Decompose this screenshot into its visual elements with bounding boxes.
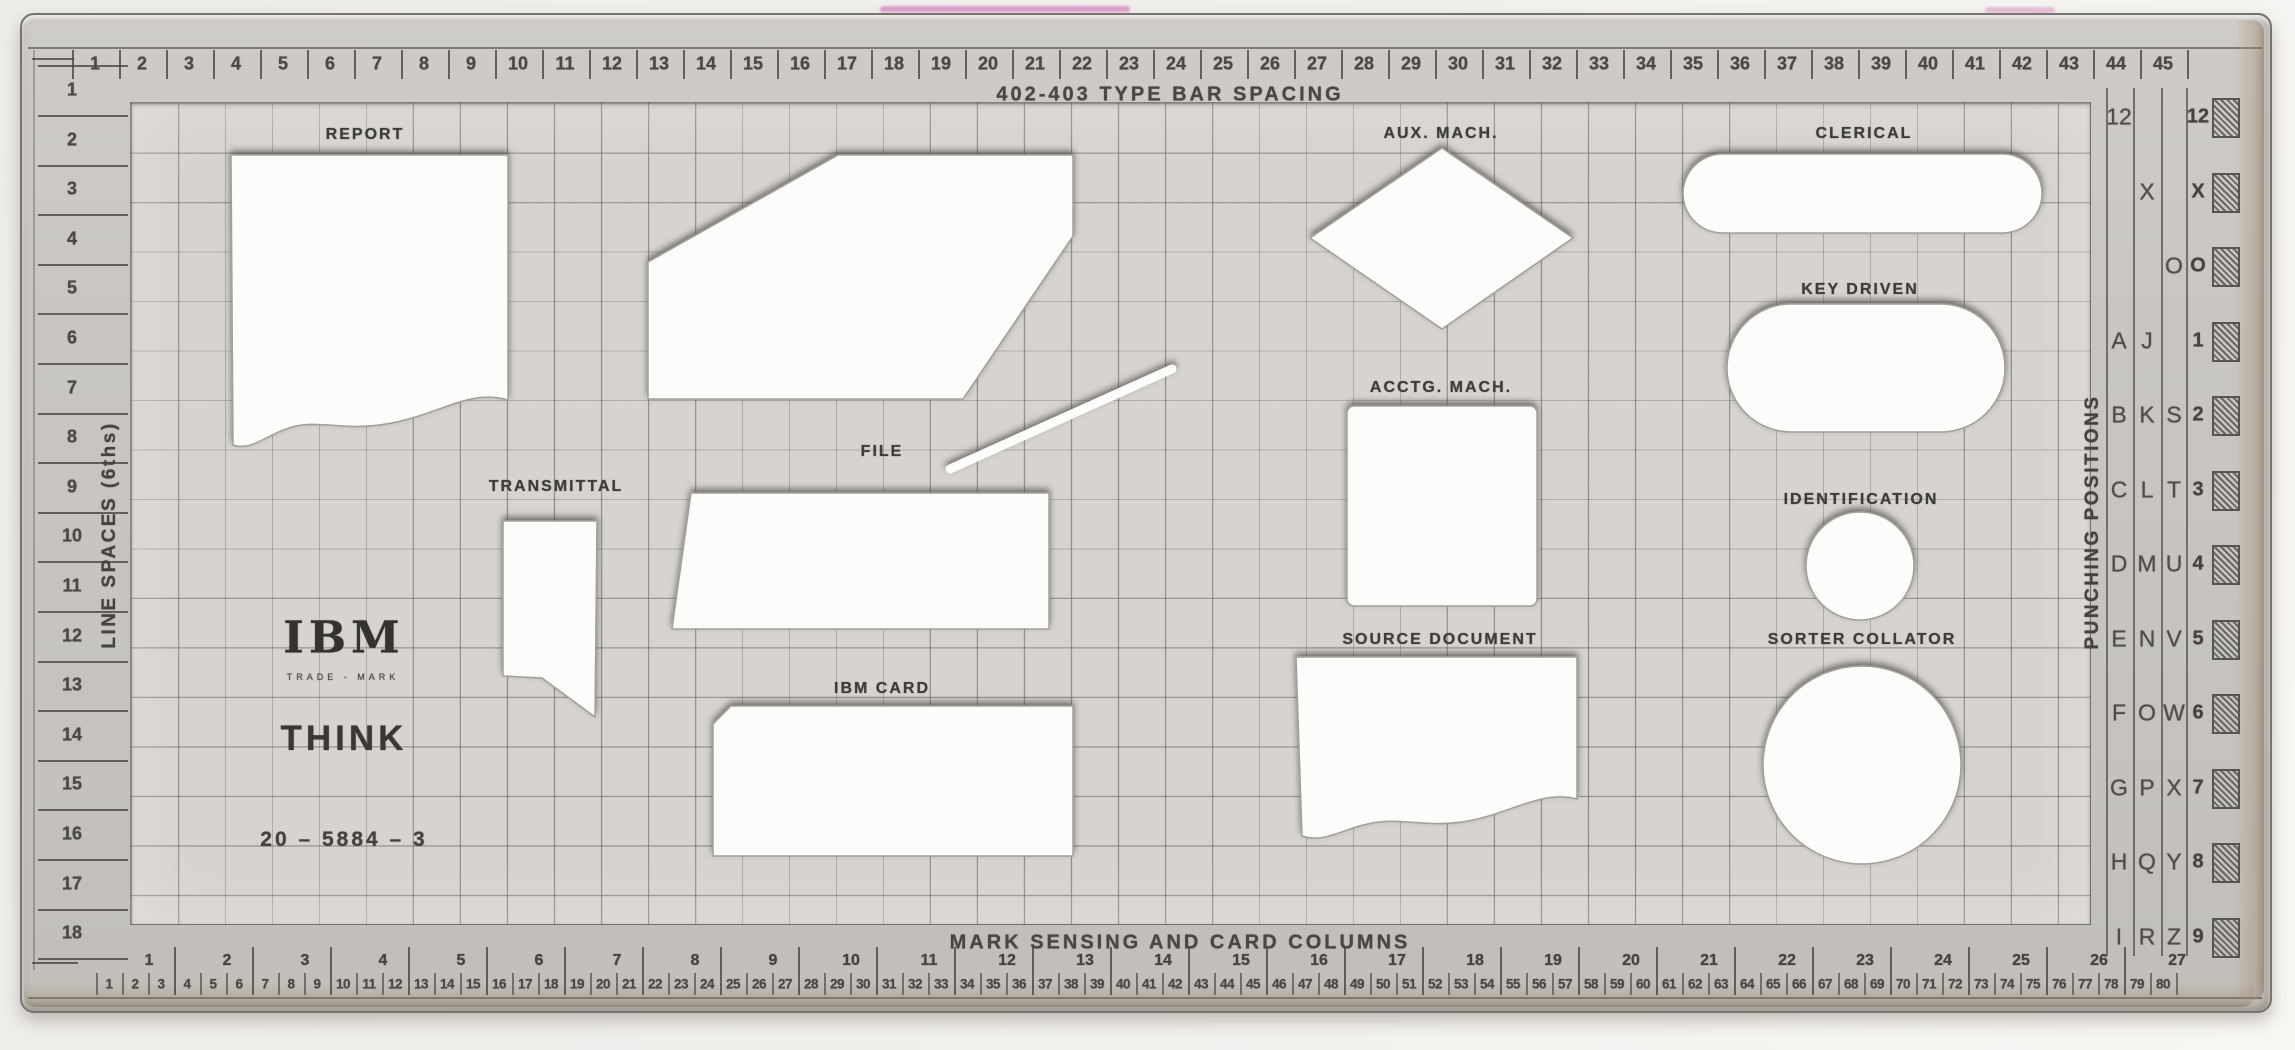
- left-ruler-tick: [38, 710, 128, 712]
- card-column-tick: [1188, 947, 1190, 995]
- left-ruler-tick: [38, 760, 128, 762]
- top-ruler-number: 36: [1730, 54, 1750, 75]
- card-column-tick: [200, 973, 202, 995]
- punching-position-char: C: [2111, 476, 2128, 503]
- card-column-tick: [2046, 947, 2048, 995]
- left-ruler-tick: [38, 661, 128, 663]
- top-ruler-tick: [1858, 50, 1860, 79]
- left-ruler-tick: [38, 611, 128, 613]
- top-ruler-tick: [1952, 50, 1954, 79]
- top-ruler-tick: [1905, 50, 1907, 79]
- card-column-number: 24: [700, 977, 714, 992]
- top-ruler-tick: [1247, 50, 1249, 79]
- card-column-number: 19: [570, 977, 584, 992]
- top-ruler-tick: [401, 50, 403, 79]
- card-column-tick: [1994, 973, 1996, 995]
- card-column-tick: [1656, 947, 1658, 995]
- punching-positions-label: PUNCHING POSITIONS: [2082, 394, 2104, 649]
- card-column-tick: [226, 973, 228, 995]
- top-ruler-tick: [1670, 50, 1672, 79]
- card-column-number: 11: [362, 977, 375, 992]
- top-ruler-number: 11: [555, 54, 574, 75]
- punching-position-char: 12: [2187, 106, 2209, 129]
- top-ruler-tick: [918, 50, 920, 79]
- card-column-tick: [1318, 973, 1320, 995]
- top-ruler-number: 8: [419, 54, 429, 75]
- left-ruler-number: 15: [62, 774, 82, 795]
- card-column-tick: [928, 973, 930, 995]
- card-column-tick: [590, 973, 592, 995]
- card-column-number: 56: [1532, 977, 1546, 992]
- punching-position-hatch-box: [2212, 769, 2240, 809]
- card-column-number: 45: [1246, 977, 1260, 992]
- top-ruler-number: 29: [1401, 54, 1421, 75]
- card-column-tick: [1552, 973, 1554, 995]
- top-ruler-tick: [965, 50, 967, 79]
- left-ruler-tick: [38, 313, 128, 315]
- top-ruler-tick: [730, 50, 732, 79]
- card-column-number: 59: [1610, 977, 1624, 992]
- punching-position-hatch-box: [2212, 322, 2240, 362]
- card-column-number: 55: [1506, 977, 1520, 992]
- card-column-number: 69: [1870, 977, 1884, 992]
- mark-sensing-number: 23: [1856, 952, 1874, 970]
- left-ruler-number: 14: [62, 724, 82, 745]
- card-column-number: 7: [261, 977, 268, 992]
- card-column-tick: [850, 973, 852, 995]
- card-column-tick: [2124, 947, 2126, 995]
- part-number: 20 – 5884 – 3: [260, 828, 427, 852]
- card-column-tick: [1812, 947, 1814, 995]
- punching-position-hatch-box: [2212, 545, 2240, 585]
- card-column-number: 54: [1480, 977, 1494, 992]
- punching-position-char: T: [2167, 476, 2181, 503]
- top-ruler-number: 1: [90, 54, 100, 75]
- top-ruler-tick: [1200, 50, 1202, 79]
- card-column-tick: [1162, 973, 1164, 995]
- card-column-number: 75: [2026, 977, 2040, 992]
- card-column-number: 37: [1038, 977, 1052, 992]
- card-column-tick: [356, 973, 358, 995]
- card-column-number: 9: [313, 977, 320, 992]
- mark-sensing-title: MARK SENSING AND CARD COLUMNS: [950, 932, 1411, 955]
- card-column-number: 10: [336, 977, 350, 992]
- card-column-tick: [798, 947, 800, 995]
- punching-position-char: X: [2139, 178, 2154, 205]
- mark-sensing-number: 8: [691, 952, 700, 970]
- card-column-number: 15: [466, 977, 480, 992]
- left-ruler-number: 3: [67, 179, 77, 200]
- card-column-tick: [1084, 973, 1086, 995]
- type-bar-spacing-title: 402-403 TYPE BAR SPACING: [996, 84, 1343, 107]
- top-ruler-number: 38: [1824, 54, 1844, 75]
- card-column-tick: [1474, 973, 1476, 995]
- card-column-tick: [1708, 973, 1710, 995]
- top-ruler-number: 34: [1636, 54, 1656, 75]
- top-ruler-tick: [2187, 50, 2189, 79]
- card-column-tick: [772, 973, 774, 995]
- card-column-number: 73: [1974, 977, 1988, 992]
- punching-position-char: W: [2163, 700, 2185, 727]
- left-ruler-number: 11: [62, 576, 81, 597]
- top-ruler-tick: [1153, 50, 1155, 79]
- card-column-number: 4: [183, 977, 190, 992]
- card-column-number: 49: [1350, 977, 1364, 992]
- top-ruler-tick: [1341, 50, 1343, 79]
- card-column-number: 25: [726, 977, 740, 992]
- left-ruler-number: 4: [67, 228, 77, 249]
- card-column-number: 61: [1662, 977, 1676, 992]
- card-column-tick: [2020, 973, 2022, 995]
- punching-position-char: 2: [2192, 404, 2203, 427]
- card-column-tick: [642, 947, 644, 995]
- card-column-number: 39: [1090, 977, 1104, 992]
- top-ruler-tick: [1529, 50, 1531, 79]
- card-column-number: 30: [856, 977, 870, 992]
- punching-position-char: X: [2191, 180, 2204, 203]
- punching-position-hatch-box: [2212, 620, 2240, 660]
- card-column-tick: [1942, 973, 1944, 995]
- top-ruler-tick: [777, 50, 779, 79]
- card-column-number: 52: [1428, 977, 1442, 992]
- card-column-number: 12: [388, 977, 402, 992]
- mark-sensing-number: 20: [1622, 952, 1640, 970]
- punching-position-char: M: [2137, 551, 2156, 578]
- punching-position-char: 9: [2192, 925, 2203, 948]
- ibm-logo: IBM: [283, 613, 404, 664]
- top-ruler-number: 3: [184, 54, 194, 75]
- left-ruler-tick: [38, 165, 128, 167]
- left-ruler-number: 9: [67, 476, 77, 497]
- card-column-number: 67: [1818, 977, 1832, 992]
- shape-label-key-driven: KEY DRIVEN: [1801, 281, 1919, 299]
- punching-position-char: G: [2110, 774, 2128, 801]
- top-ruler-tick: [2140, 50, 2142, 79]
- mark-sensing-number: 12: [998, 952, 1016, 970]
- card-column-tick: [616, 973, 618, 995]
- card-column-tick: [1916, 973, 1918, 995]
- left-ruler-tick: [38, 363, 128, 365]
- top-ruler-tick: [260, 50, 262, 79]
- card-column-tick: [486, 947, 488, 995]
- left-ruler-number: 2: [67, 129, 77, 150]
- top-ruler-tick: [542, 50, 544, 79]
- top-ruler-tick: [1294, 50, 1296, 79]
- punching-position-char: 4: [2192, 553, 2203, 576]
- top-ruler-number: 30: [1448, 54, 1468, 75]
- mark-sensing-number: 11: [921, 952, 938, 970]
- card-column-number: 74: [2000, 977, 2014, 992]
- punching-position-char: P: [2139, 774, 2154, 801]
- left-ruler-tick: [38, 65, 128, 67]
- top-ruler-tick: [683, 50, 685, 79]
- mark-sensing-number: 16: [1310, 952, 1328, 970]
- card-column-tick: [1032, 947, 1034, 995]
- scan-color-artifact: [880, 6, 1130, 12]
- punching-column-line: [2133, 88, 2135, 956]
- card-column-tick: [1786, 973, 1788, 995]
- punching-position-char: Z: [2167, 923, 2181, 950]
- left-ruler-number: 12: [62, 625, 82, 646]
- punching-position-char: 8: [2192, 851, 2203, 874]
- left-ruler-tick: [38, 462, 128, 464]
- top-ruler-number: 42: [2012, 54, 2032, 75]
- top-ruler-number: 2: [137, 54, 147, 75]
- top-ruler-tick: [1012, 50, 1014, 79]
- mark-sensing-number: 19: [1544, 952, 1562, 970]
- left-ruler-tick: [38, 958, 128, 960]
- top-ruler-baseline: [28, 47, 2262, 49]
- top-ruler-tick: [1576, 50, 1578, 79]
- punching-position-hatch-box: [2212, 471, 2240, 511]
- top-ruler-tick: [1059, 50, 1061, 79]
- punching-position-char: O: [2138, 700, 2156, 727]
- left-ruler-number: 5: [67, 278, 77, 299]
- left-ruler-tick: [38, 561, 128, 563]
- left-ruler-number: 6: [67, 328, 77, 349]
- card-column-tick: [1760, 973, 1762, 995]
- card-column-tick: [824, 973, 826, 995]
- card-column-tick: [1370, 973, 1372, 995]
- card-column-number: 3: [157, 977, 164, 992]
- mark-sensing-number: 5: [457, 952, 466, 970]
- punching-position-hatch-box: [2212, 247, 2240, 287]
- card-column-number: 78: [2104, 977, 2118, 992]
- top-ruler-number: 25: [1213, 54, 1233, 75]
- mark-sensing-number: 7: [613, 952, 622, 970]
- punching-position-char: Q: [2138, 849, 2156, 876]
- top-ruler-tick: [2093, 50, 2095, 79]
- card-column-number: 35: [986, 977, 1000, 992]
- top-ruler-number: 19: [931, 54, 951, 75]
- left-edge-line: [33, 50, 35, 970]
- card-column-number: 23: [674, 977, 688, 992]
- scan-color-artifact: [1985, 7, 2055, 13]
- top-ruler-number: 27: [1307, 54, 1327, 75]
- card-column-tick: [2176, 973, 2178, 995]
- punching-position-char: 5: [2192, 627, 2203, 650]
- top-ruler-number: 15: [743, 54, 763, 75]
- card-column-number: 68: [1844, 977, 1858, 992]
- top-ruler-tick: [2046, 50, 2048, 79]
- card-column-number: 60: [1636, 977, 1650, 992]
- top-ruler-number: 10: [508, 54, 528, 75]
- punching-position-char: S: [2166, 402, 2181, 429]
- card-column-number: 51: [1402, 977, 1416, 992]
- punching-position-char: R: [2139, 923, 2156, 950]
- card-column-number: 32: [908, 977, 922, 992]
- card-column-number: 21: [622, 977, 636, 992]
- top-ruler-tick: [1764, 50, 1766, 79]
- top-ruler-number: 23: [1119, 54, 1139, 75]
- punching-position-char: V: [2166, 625, 2181, 652]
- top-ruler-tick: [1811, 50, 1813, 79]
- punching-position-char: E: [2111, 625, 2126, 652]
- shape-label-source-document: SOURCE DOCUMENT: [1342, 631, 1537, 649]
- card-column-tick: [330, 947, 332, 995]
- punching-position-char: A: [2111, 327, 2126, 354]
- card-column-tick: [1136, 973, 1138, 995]
- punching-position-hatch-box: [2212, 843, 2240, 883]
- left-ruler-number: 1: [67, 80, 77, 101]
- card-column-number: 79: [2130, 977, 2144, 992]
- card-column-number: 5: [209, 977, 216, 992]
- left-ruler-tick: [38, 264, 128, 266]
- card-column-tick: [408, 947, 410, 995]
- card-column-tick: [694, 973, 696, 995]
- punching-position-char: Y: [2166, 849, 2181, 876]
- card-column-tick: [1396, 973, 1398, 995]
- card-column-tick: [1266, 947, 1268, 995]
- mark-sensing-number: 10: [842, 952, 860, 970]
- scanned-ibm-flowchart-template: 402-403 TYPE BAR SPACING MARK SENSING AN…: [0, 0, 2295, 1050]
- card-column-number: 63: [1714, 977, 1728, 992]
- card-column-tick: [1292, 973, 1294, 995]
- card-column-tick: [382, 973, 384, 995]
- card-column-number: 2: [131, 977, 138, 992]
- card-column-number: 38: [1064, 977, 1078, 992]
- card-column-number: 6: [235, 977, 242, 992]
- card-column-number: 76: [2052, 977, 2066, 992]
- punching-position-hatch-box: [2212, 396, 2240, 436]
- card-column-tick: [1214, 973, 1216, 995]
- top-ruler-number: 32: [1542, 54, 1562, 75]
- shape-label-ibm-card: IBM CARD: [834, 680, 930, 698]
- card-column-tick: [538, 973, 540, 995]
- top-ruler-number: 7: [372, 54, 382, 75]
- card-column-number: 46: [1272, 977, 1286, 992]
- card-column-tick: [1240, 973, 1242, 995]
- think-slogan: THINK: [281, 719, 408, 759]
- card-column-number: 33: [934, 977, 948, 992]
- left-ruler-tick: [38, 214, 128, 216]
- left-ruler-number: 8: [67, 427, 77, 448]
- corner-bracket-bottom: [32, 962, 78, 964]
- punching-position-char: F: [2112, 700, 2126, 727]
- top-ruler-tick: [1388, 50, 1390, 79]
- left-ruler-number: 13: [62, 675, 82, 696]
- card-column-tick: [1968, 947, 1970, 995]
- grid-area: [130, 102, 2091, 925]
- punching-position-char: K: [2139, 402, 2154, 429]
- corner-bracket-top: [32, 58, 74, 60]
- shape-label-clerical: CLERICAL: [1816, 125, 1913, 143]
- left-ruler-tick: [38, 413, 128, 415]
- punching-column-line: [2161, 88, 2163, 956]
- top-ruler-tick: [1999, 50, 2001, 79]
- top-ruler-number: 13: [649, 54, 669, 75]
- card-column-tick: [1006, 973, 1008, 995]
- top-ruler-tick: [589, 50, 591, 79]
- card-column-number: 17: [518, 977, 532, 992]
- top-ruler-number: 18: [884, 54, 904, 75]
- card-column-number: 36: [1012, 977, 1026, 992]
- punching-column-line: [2186, 88, 2188, 956]
- card-column-tick: [980, 973, 982, 995]
- shape-label-report: REPORT: [326, 126, 405, 144]
- punching-position-char: H: [2111, 849, 2128, 876]
- top-ruler-number: 20: [978, 54, 998, 75]
- punching-position-hatch-box: [2212, 918, 2240, 958]
- mark-sensing-number: 24: [1934, 952, 1952, 970]
- card-column-number: 18: [544, 977, 558, 992]
- punching-column-line: [2106, 88, 2108, 956]
- card-column-tick: [148, 973, 150, 995]
- card-column-tick: [1734, 947, 1736, 995]
- top-ruler-number: 35: [1683, 54, 1703, 75]
- shape-label-identification: IDENTIFICATION: [1784, 491, 1939, 509]
- top-ruler-number: 37: [1777, 54, 1797, 75]
- punching-position-hatch-box: [2212, 694, 2240, 734]
- card-column-tick: [1864, 973, 1866, 995]
- top-ruler-tick: [448, 50, 450, 79]
- punching-position-char: J: [2141, 327, 2153, 354]
- card-column-number: 66: [1792, 977, 1806, 992]
- top-ruler-tick: [1623, 50, 1625, 79]
- card-column-number: 8: [287, 977, 294, 992]
- top-ruler-number: 31: [1495, 54, 1515, 75]
- top-ruler-number: 9: [466, 54, 476, 75]
- top-ruler-number: 26: [1260, 54, 1280, 75]
- card-column-tick: [1058, 973, 1060, 995]
- shape-label-file: FILE: [861, 443, 904, 461]
- left-ruler-number: 7: [67, 377, 77, 398]
- card-column-number: 16: [492, 977, 506, 992]
- top-ruler-tick: [495, 50, 497, 79]
- mark-sensing-number: 15: [1232, 952, 1250, 970]
- left-ruler-tick: [38, 859, 128, 861]
- mark-sensing-number: 22: [1778, 952, 1796, 970]
- mark-sensing-number: 4: [379, 952, 388, 970]
- card-column-tick: [1838, 973, 1840, 995]
- card-column-number: 26: [752, 977, 766, 992]
- card-column-tick: [1578, 947, 1580, 995]
- mark-sensing-number: 3: [301, 952, 310, 970]
- top-ruler-tick: [636, 50, 638, 79]
- top-ruler-number: 6: [325, 54, 335, 75]
- punching-position-char: D: [2111, 551, 2128, 578]
- punching-position-hatch-box: [2212, 173, 2240, 213]
- card-column-tick: [1526, 973, 1528, 995]
- card-column-number: 58: [1584, 977, 1598, 992]
- left-ruler-tick: [38, 512, 128, 514]
- card-column-tick: [954, 947, 956, 995]
- card-column-tick: [1344, 947, 1346, 995]
- mark-sensing-number: 2: [223, 952, 232, 970]
- left-ruler-number: 10: [62, 526, 82, 547]
- top-ruler-tick: [166, 50, 168, 79]
- card-column-tick: [304, 973, 306, 995]
- top-ruler-number: 12: [602, 54, 622, 75]
- card-column-number: 48: [1324, 977, 1338, 992]
- card-column-tick: [1630, 973, 1632, 995]
- punching-position-char: B: [2111, 402, 2126, 429]
- mark-sensing-number: 13: [1076, 952, 1094, 970]
- left-ruler-number: 17: [62, 873, 82, 894]
- card-column-number: 47: [1298, 977, 1312, 992]
- card-column-number: 31: [882, 977, 896, 992]
- card-column-tick: [564, 947, 566, 995]
- top-ruler-tick: [871, 50, 873, 79]
- punching-position-char: 3: [2192, 478, 2203, 501]
- top-ruler-number: 39: [1871, 54, 1891, 75]
- card-column-tick: [1422, 947, 1424, 995]
- top-ruler-number: 5: [278, 54, 288, 75]
- ibm-trademark-label: TRADE - MARK: [287, 672, 400, 682]
- card-column-tick: [668, 973, 670, 995]
- mark-sensing-number: 14: [1154, 952, 1172, 970]
- left-ruler-number: 18: [62, 923, 82, 944]
